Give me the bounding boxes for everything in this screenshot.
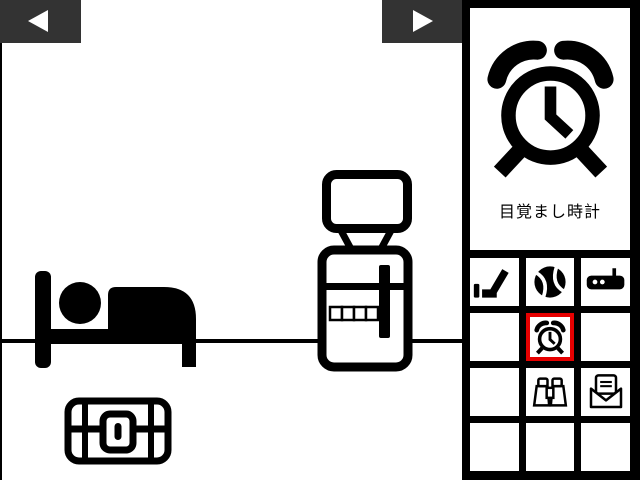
game-screen: 目覚まし時計	[0, 0, 640, 480]
alarm-clock-icon	[532, 319, 568, 356]
right-arrow-icon	[413, 10, 433, 32]
scene-left-border	[0, 43, 2, 480]
inventory-slot-empty[interactable]	[470, 368, 519, 416]
selected-item-display: 目覚まし時計	[470, 8, 630, 250]
room-scene[interactable]	[0, 0, 462, 480]
treasure-chest[interactable]	[58, 392, 178, 472]
inventory-sidebar: 目覚まし時計	[462, 0, 640, 480]
inventory-slot-empty[interactable]	[470, 423, 519, 471]
radio-icon	[584, 260, 628, 304]
inventory-slot-empty[interactable]	[526, 423, 575, 471]
nav-forward-button[interactable]	[382, 0, 463, 43]
alarm-clock-large-icon	[478, 34, 623, 184]
inventory-grid	[470, 258, 630, 471]
envelope-icon	[586, 372, 626, 412]
water-server[interactable]	[313, 165, 417, 377]
inventory-slot-empty[interactable]	[581, 423, 630, 471]
inventory-slot-empty[interactable]	[470, 313, 519, 361]
inventory-slot-alarm-clock-selected[interactable]	[526, 313, 575, 361]
inventory-slot-binoculars[interactable]	[526, 368, 575, 416]
bed[interactable]	[28, 266, 200, 370]
selected-item-label: 目覚まし時計	[499, 198, 601, 222]
keyhole-icon	[115, 423, 122, 440]
left-arrow-icon	[28, 10, 48, 32]
inventory-slot-radio[interactable]	[581, 258, 630, 306]
inventory-slot-ball[interactable]	[526, 258, 575, 306]
inventory-slot-empty[interactable]	[581, 313, 630, 361]
golf-club-icon	[472, 260, 516, 304]
inventory-slot-envelope[interactable]	[581, 368, 630, 416]
ball-icon	[528, 260, 572, 304]
binoculars-icon	[530, 372, 570, 412]
code-panel	[330, 307, 378, 320]
inventory-slot-golf-club[interactable]	[470, 258, 519, 306]
nav-back-button[interactable]	[0, 0, 81, 43]
